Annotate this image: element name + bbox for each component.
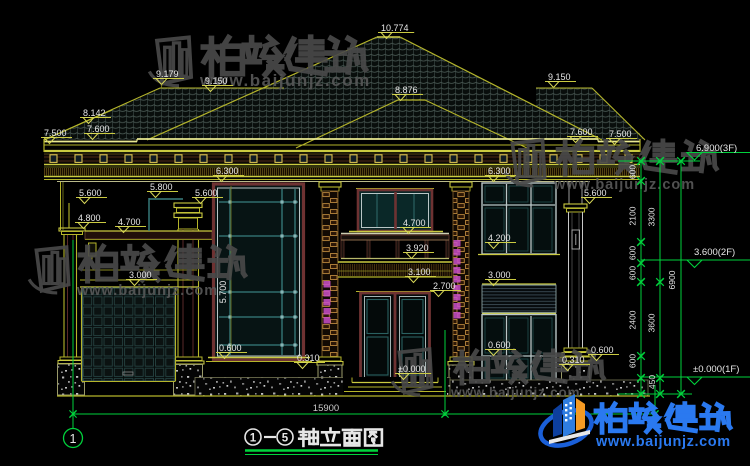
svg-text:7.500: 7.500 [44, 128, 67, 138]
svg-text:1: 1 [70, 432, 77, 446]
svg-text:2100: 2100 [628, 206, 638, 225]
svg-text:1: 1 [250, 433, 257, 445]
svg-text:7.500: 7.500 [609, 129, 632, 139]
svg-text:±0.000: ±0.000 [398, 364, 425, 374]
svg-text:8.142: 8.142 [83, 108, 106, 118]
svg-text:10.774: 10.774 [381, 23, 409, 33]
svg-text:3.100: 3.100 [408, 267, 431, 277]
svg-text:6.300: 6.300 [488, 166, 511, 176]
svg-text:6.300: 6.300 [216, 166, 239, 176]
svg-text:450: 450 [647, 375, 657, 389]
svg-text:3.600(2F): 3.600(2F) [694, 247, 735, 258]
svg-text:5: 5 [282, 433, 289, 445]
svg-text:15900: 15900 [313, 403, 339, 414]
svg-text:5.600: 5.600 [584, 188, 607, 198]
svg-text:3.000: 3.000 [129, 270, 152, 280]
svg-text:7.600: 7.600 [87, 124, 110, 134]
svg-text:4.700: 4.700 [403, 218, 426, 228]
svg-text:5.700: 5.700 [218, 281, 228, 304]
svg-text:0.600: 0.600 [488, 340, 511, 350]
svg-text:6.900(3F): 6.900(3F) [696, 143, 737, 154]
svg-text:4.800: 4.800 [78, 213, 101, 223]
svg-text:www.baijunjz.com: www.baijunjz.com [553, 177, 695, 193]
svg-text:3.920: 3.920 [406, 243, 429, 253]
svg-text:www.baijunjz.com: www.baijunjz.com [595, 434, 731, 450]
svg-text:0.310: 0.310 [562, 355, 585, 365]
svg-text:600: 600 [628, 165, 638, 179]
svg-text:5.600: 5.600 [195, 188, 218, 198]
svg-text:±0.000(1F): ±0.000(1F) [693, 364, 739, 375]
svg-text:4.700: 4.700 [118, 217, 141, 227]
svg-text:5.800: 5.800 [150, 182, 173, 192]
svg-text:7.600: 7.600 [570, 127, 593, 137]
svg-text:3300: 3300 [647, 207, 657, 226]
svg-text:4.200: 4.200 [488, 233, 511, 243]
svg-text:600: 600 [628, 246, 638, 260]
svg-text:8.876: 8.876 [395, 85, 418, 95]
svg-text:0.600: 0.600 [591, 345, 614, 355]
svg-text:0.600: 0.600 [219, 343, 242, 353]
svg-text:600: 600 [628, 354, 638, 368]
svg-text:3600: 3600 [647, 313, 657, 332]
svg-text:9.179: 9.179 [156, 69, 179, 79]
svg-text:6900: 6900 [667, 270, 677, 289]
svg-text:www.baijunjz.com: www.baijunjz.com [450, 385, 580, 400]
svg-text:0.310: 0.310 [297, 353, 320, 363]
svg-text:5.600: 5.600 [79, 188, 102, 198]
svg-text:2400: 2400 [628, 310, 638, 329]
svg-text:3.000: 3.000 [488, 270, 511, 280]
svg-text:9.150: 9.150 [205, 76, 228, 86]
svg-text:600: 600 [628, 266, 638, 280]
svg-text:www.baijunjz.com: www.baijunjz.com [76, 283, 218, 299]
svg-text:2.700: 2.700 [433, 281, 456, 291]
svg-text:9.150: 9.150 [548, 72, 571, 82]
